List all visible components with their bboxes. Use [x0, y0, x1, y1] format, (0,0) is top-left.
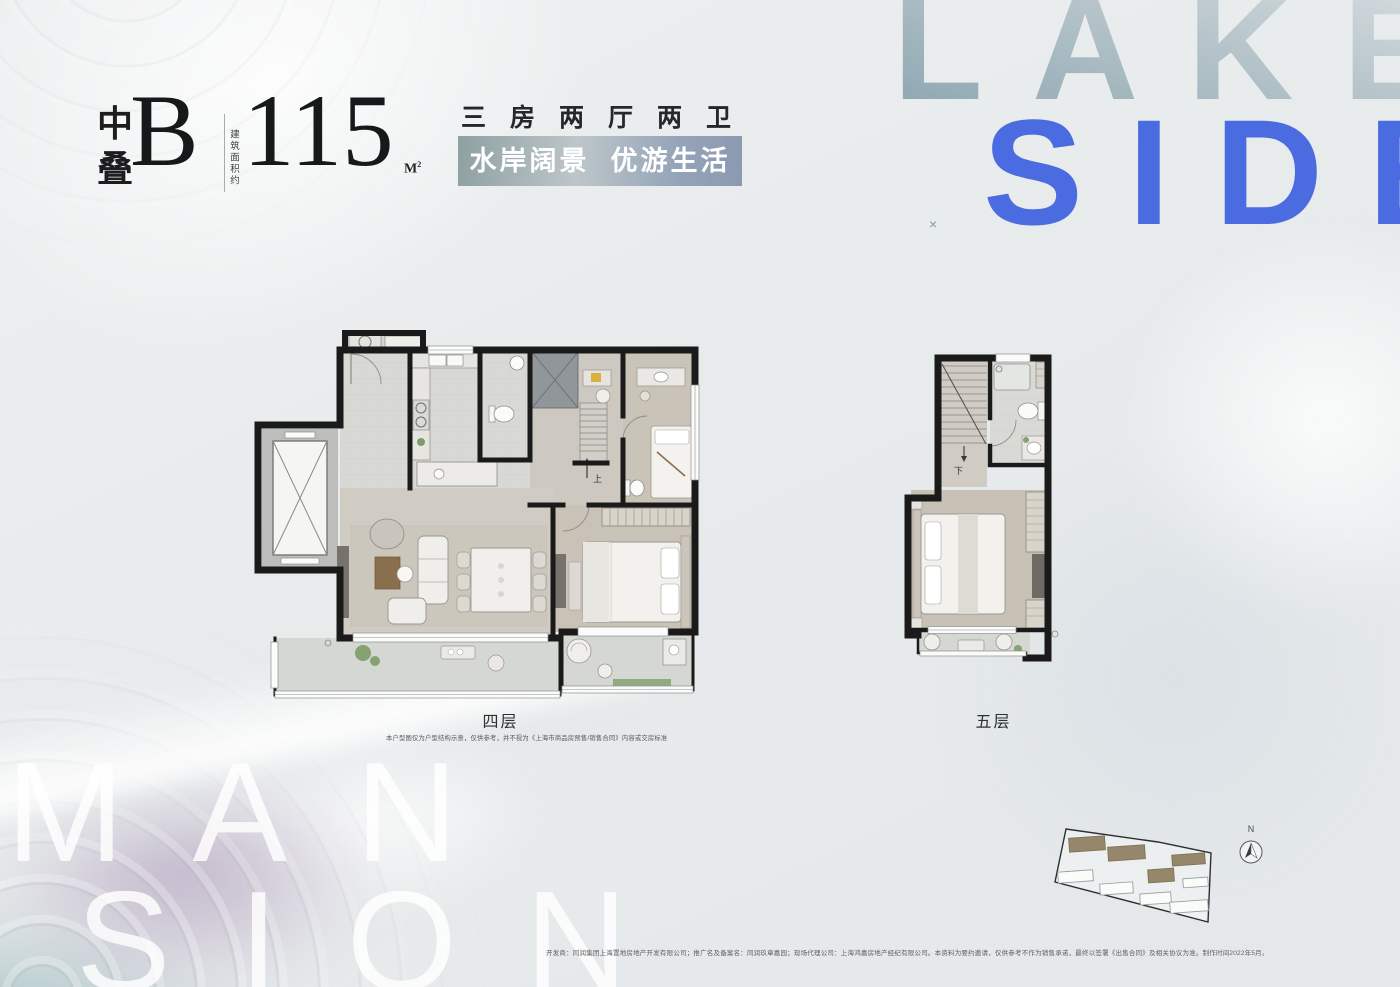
plan4-elevator: [273, 432, 327, 564]
floorplan-level5: 下: [898, 350, 1063, 662]
north-arrow-icon: [1236, 824, 1266, 870]
floorplan-disclaimer-note: 本户型图仅为户型结构示意，仅供参考，并不视为《上海市商品房预售/销售合同》内容或…: [386, 733, 667, 742]
layout-spec: 三房两厅两卫: [461, 98, 755, 134]
footer-disclaimer: 开发商：同润集团上海置地房地产开发有限公司；推广名及备案名：同润玖章嘉园；现场代…: [546, 947, 1269, 957]
plan4-living-dining: [337, 519, 547, 626]
floorplan-level4: 上: [253, 330, 715, 702]
plan5-stair-mark: 下: [954, 466, 963, 476]
unit-letter: B: [130, 80, 199, 183]
area-unit-sup: 2: [417, 160, 421, 169]
area-unit-base: M: [404, 162, 417, 177]
watermark-side: SIDE: [983, 97, 1400, 247]
header-divider: [224, 114, 225, 192]
plan4-stair-mark: 上: [593, 474, 602, 484]
tagline-badge: 水岸阔景 优游生活: [458, 136, 742, 186]
plan4-wardrobe: [602, 508, 690, 526]
watermark-mansion-line2: SION: [76, 871, 696, 987]
siteplan: [1042, 818, 1222, 930]
plan5-label: 五层: [926, 708, 1061, 732]
area-unit: M2: [404, 160, 421, 178]
plan4-label: 四层: [433, 708, 568, 732]
area-value: 115: [243, 80, 394, 183]
poster-page: LAKE SIDE × MAN SION 中叠 B 建筑面积约 115 M2 三…: [0, 0, 1400, 987]
cross-mark: ×: [929, 216, 937, 232]
area-prefix-vertical: 建筑面积约: [226, 129, 240, 187]
